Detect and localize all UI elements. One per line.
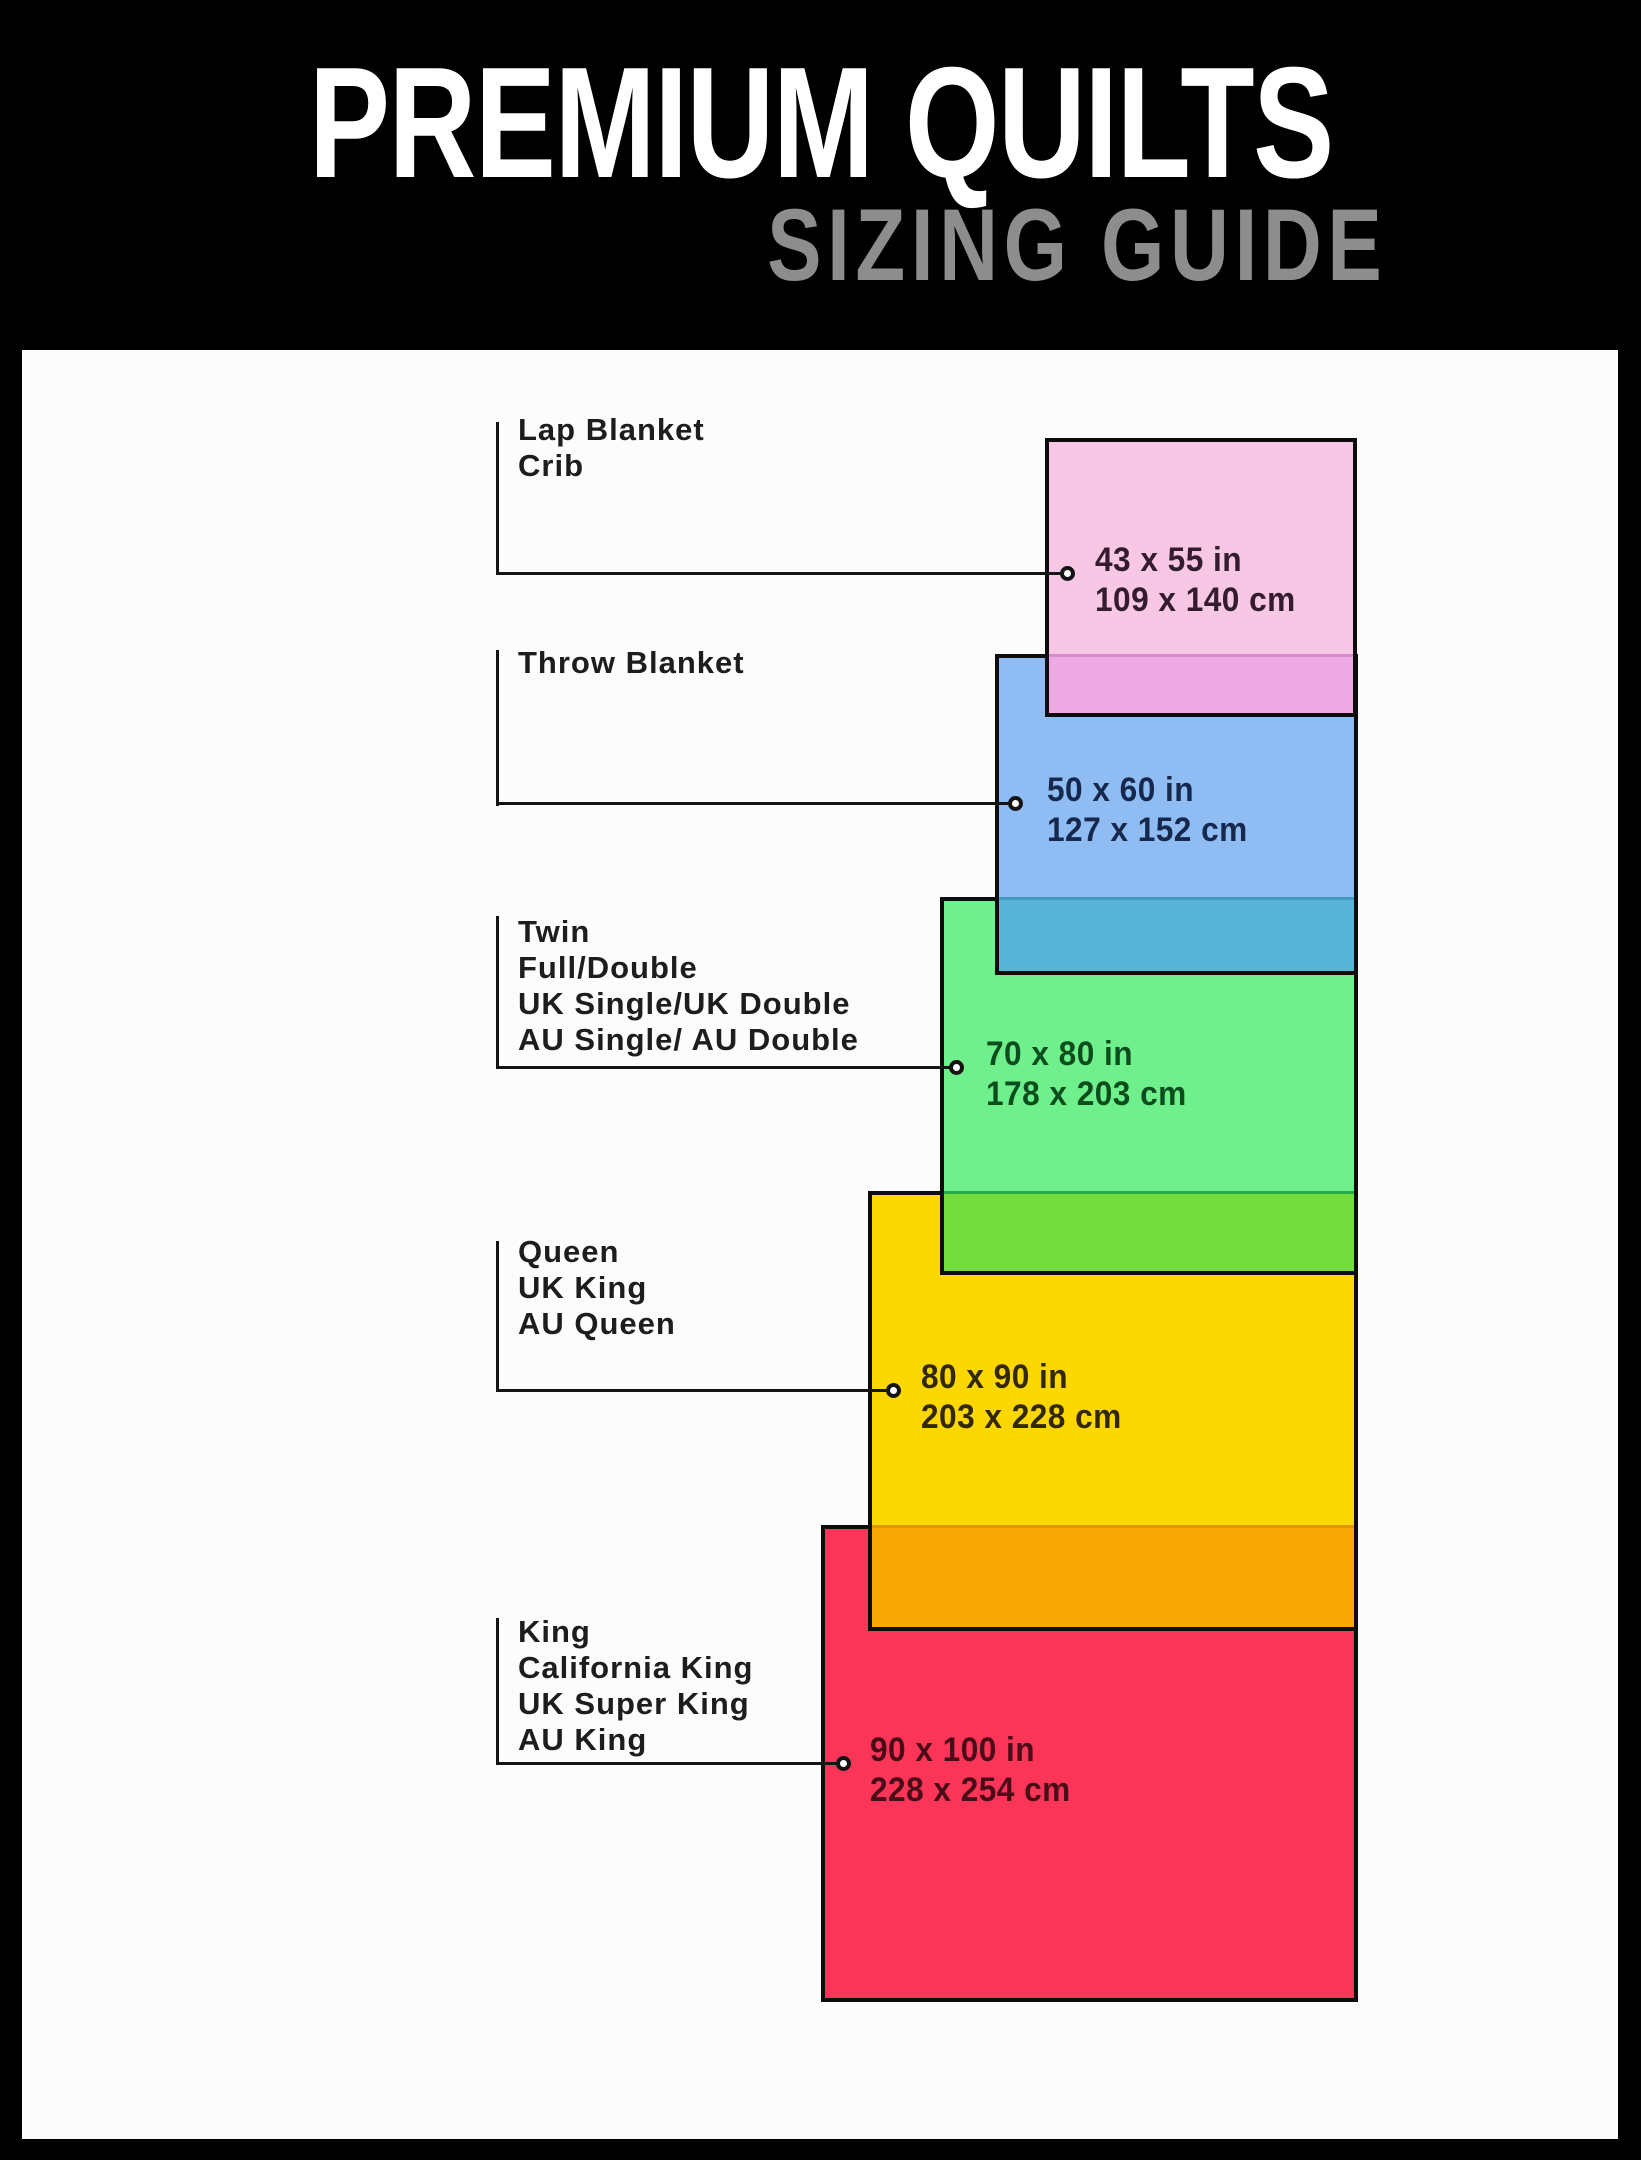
size-cm: 178 x 203 cm bbox=[986, 1074, 1187, 1114]
page-title: PREMIUM QUILTS bbox=[309, 44, 1333, 202]
label-line: AU King bbox=[518, 1722, 753, 1758]
leader-vline-queen bbox=[496, 1241, 499, 1392]
marker-dot-twin bbox=[949, 1060, 964, 1075]
leader-vline-twin bbox=[496, 916, 499, 1069]
sizing-guide-page: PREMIUM QUILTS SIZING GUIDE 43 x 55 in 1… bbox=[0, 0, 1641, 2160]
label-line: Queen bbox=[518, 1234, 676, 1270]
label-line: California King bbox=[518, 1650, 753, 1686]
size-cm: 127 x 152 cm bbox=[1047, 810, 1248, 850]
page-subtitle: SIZING GUIDE bbox=[767, 194, 1387, 296]
marker-dot-queen bbox=[886, 1383, 901, 1398]
overlap-band bbox=[999, 897, 1354, 971]
subtitle-wrap: SIZING GUIDE bbox=[612, 194, 1387, 296]
size-cm: 109 x 140 cm bbox=[1095, 580, 1296, 620]
leader-hline-twin bbox=[496, 1066, 950, 1069]
size-inches: 90 x 100 in bbox=[870, 1730, 1071, 1770]
dimension-text-king: 90 x 100 in 228 x 254 cm bbox=[870, 1730, 1071, 1810]
dimension-text-twin: 70 x 80 in 178 x 203 cm bbox=[986, 1034, 1187, 1114]
size-inches: 70 x 80 in bbox=[986, 1034, 1187, 1074]
leader-vline-king bbox=[496, 1618, 499, 1765]
category-label-king: King California King UK Super King AU Ki… bbox=[518, 1614, 753, 1758]
header: PREMIUM QUILTS bbox=[0, 44, 1641, 202]
marker-dot-king bbox=[836, 1756, 851, 1771]
leader-vline-lap-crib bbox=[496, 422, 499, 575]
category-label-queen: Queen UK King AU Queen bbox=[518, 1234, 676, 1342]
overlap-band bbox=[872, 1525, 1354, 1627]
size-inches: 43 x 55 in bbox=[1095, 540, 1296, 580]
category-label-throw: Throw Blanket bbox=[518, 645, 745, 681]
label-line: AU Single/ AU Double bbox=[518, 1022, 859, 1058]
label-line: Throw Blanket bbox=[518, 645, 745, 681]
label-line: Full/Double bbox=[518, 950, 859, 986]
marker-dot-throw bbox=[1008, 796, 1023, 811]
label-line: Twin bbox=[518, 914, 859, 950]
label-line: UK Single/UK Double bbox=[518, 986, 859, 1022]
category-label-lap-crib: Lap Blanket Crib bbox=[518, 412, 705, 484]
dimension-text-throw: 50 x 60 in 127 x 152 cm bbox=[1047, 770, 1248, 850]
leader-hline-lap-crib bbox=[496, 572, 1061, 575]
label-line: Lap Blanket bbox=[518, 412, 705, 448]
content-panel bbox=[22, 350, 1618, 2139]
size-cm: 203 x 228 cm bbox=[921, 1397, 1122, 1437]
leader-hline-throw bbox=[496, 802, 1009, 805]
overlap-band bbox=[944, 1191, 1354, 1271]
label-line: Crib bbox=[518, 448, 705, 484]
dimension-text-lap-crib: 43 x 55 in 109 x 140 cm bbox=[1095, 540, 1296, 620]
size-inches: 80 x 90 in bbox=[921, 1357, 1122, 1397]
label-line: UK Super King bbox=[518, 1686, 753, 1722]
overlap-band bbox=[1049, 654, 1353, 713]
leader-hline-king bbox=[496, 1762, 837, 1765]
size-inches: 50 x 60 in bbox=[1047, 770, 1248, 810]
label-line: King bbox=[518, 1614, 753, 1650]
label-line: UK King bbox=[518, 1270, 676, 1306]
leader-vline-throw bbox=[496, 650, 499, 806]
dimension-text-queen: 80 x 90 in 203 x 228 cm bbox=[921, 1357, 1122, 1437]
size-cm: 228 x 254 cm bbox=[870, 1770, 1071, 1810]
category-label-twin: Twin Full/Double UK Single/UK Double AU … bbox=[518, 914, 859, 1058]
leader-hline-queen bbox=[496, 1389, 887, 1392]
marker-dot-lap-crib bbox=[1060, 566, 1075, 581]
label-line: AU Queen bbox=[518, 1306, 676, 1342]
